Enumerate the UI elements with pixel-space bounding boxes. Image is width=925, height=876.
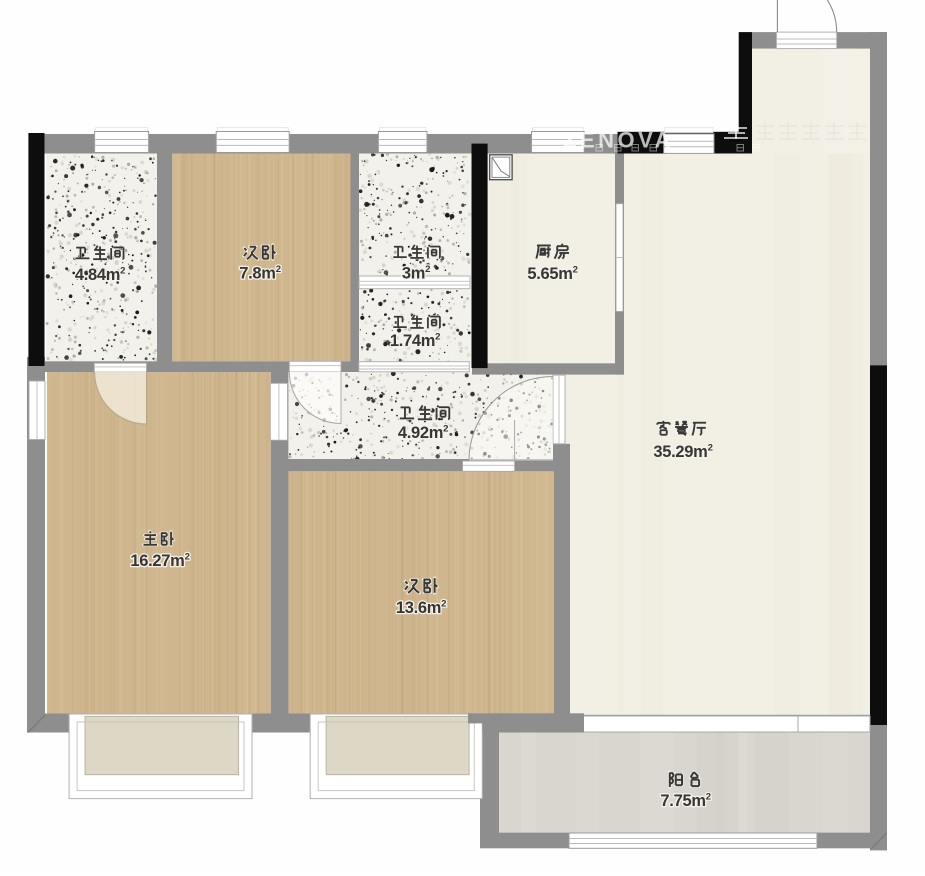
svg-text:35.29m2: 35.29m2	[653, 443, 712, 461]
svg-text:7.8m2: 7.8m2	[239, 264, 280, 282]
svg-text:4.84m2: 4.84m2	[75, 266, 125, 284]
svg-text:16.27m2: 16.27m2	[130, 552, 189, 570]
svg-text:7.75m2: 7.75m2	[660, 792, 710, 810]
svg-text:13.6m2: 13.6m2	[396, 599, 446, 617]
svg-text:5.65m2: 5.65m2	[527, 265, 577, 283]
svg-text:ZENOVA: ZENOVA	[563, 128, 674, 153]
svg-text:4.92m2: 4.92m2	[398, 424, 448, 442]
svg-text:1.74m2: 1.74m2	[390, 332, 440, 350]
